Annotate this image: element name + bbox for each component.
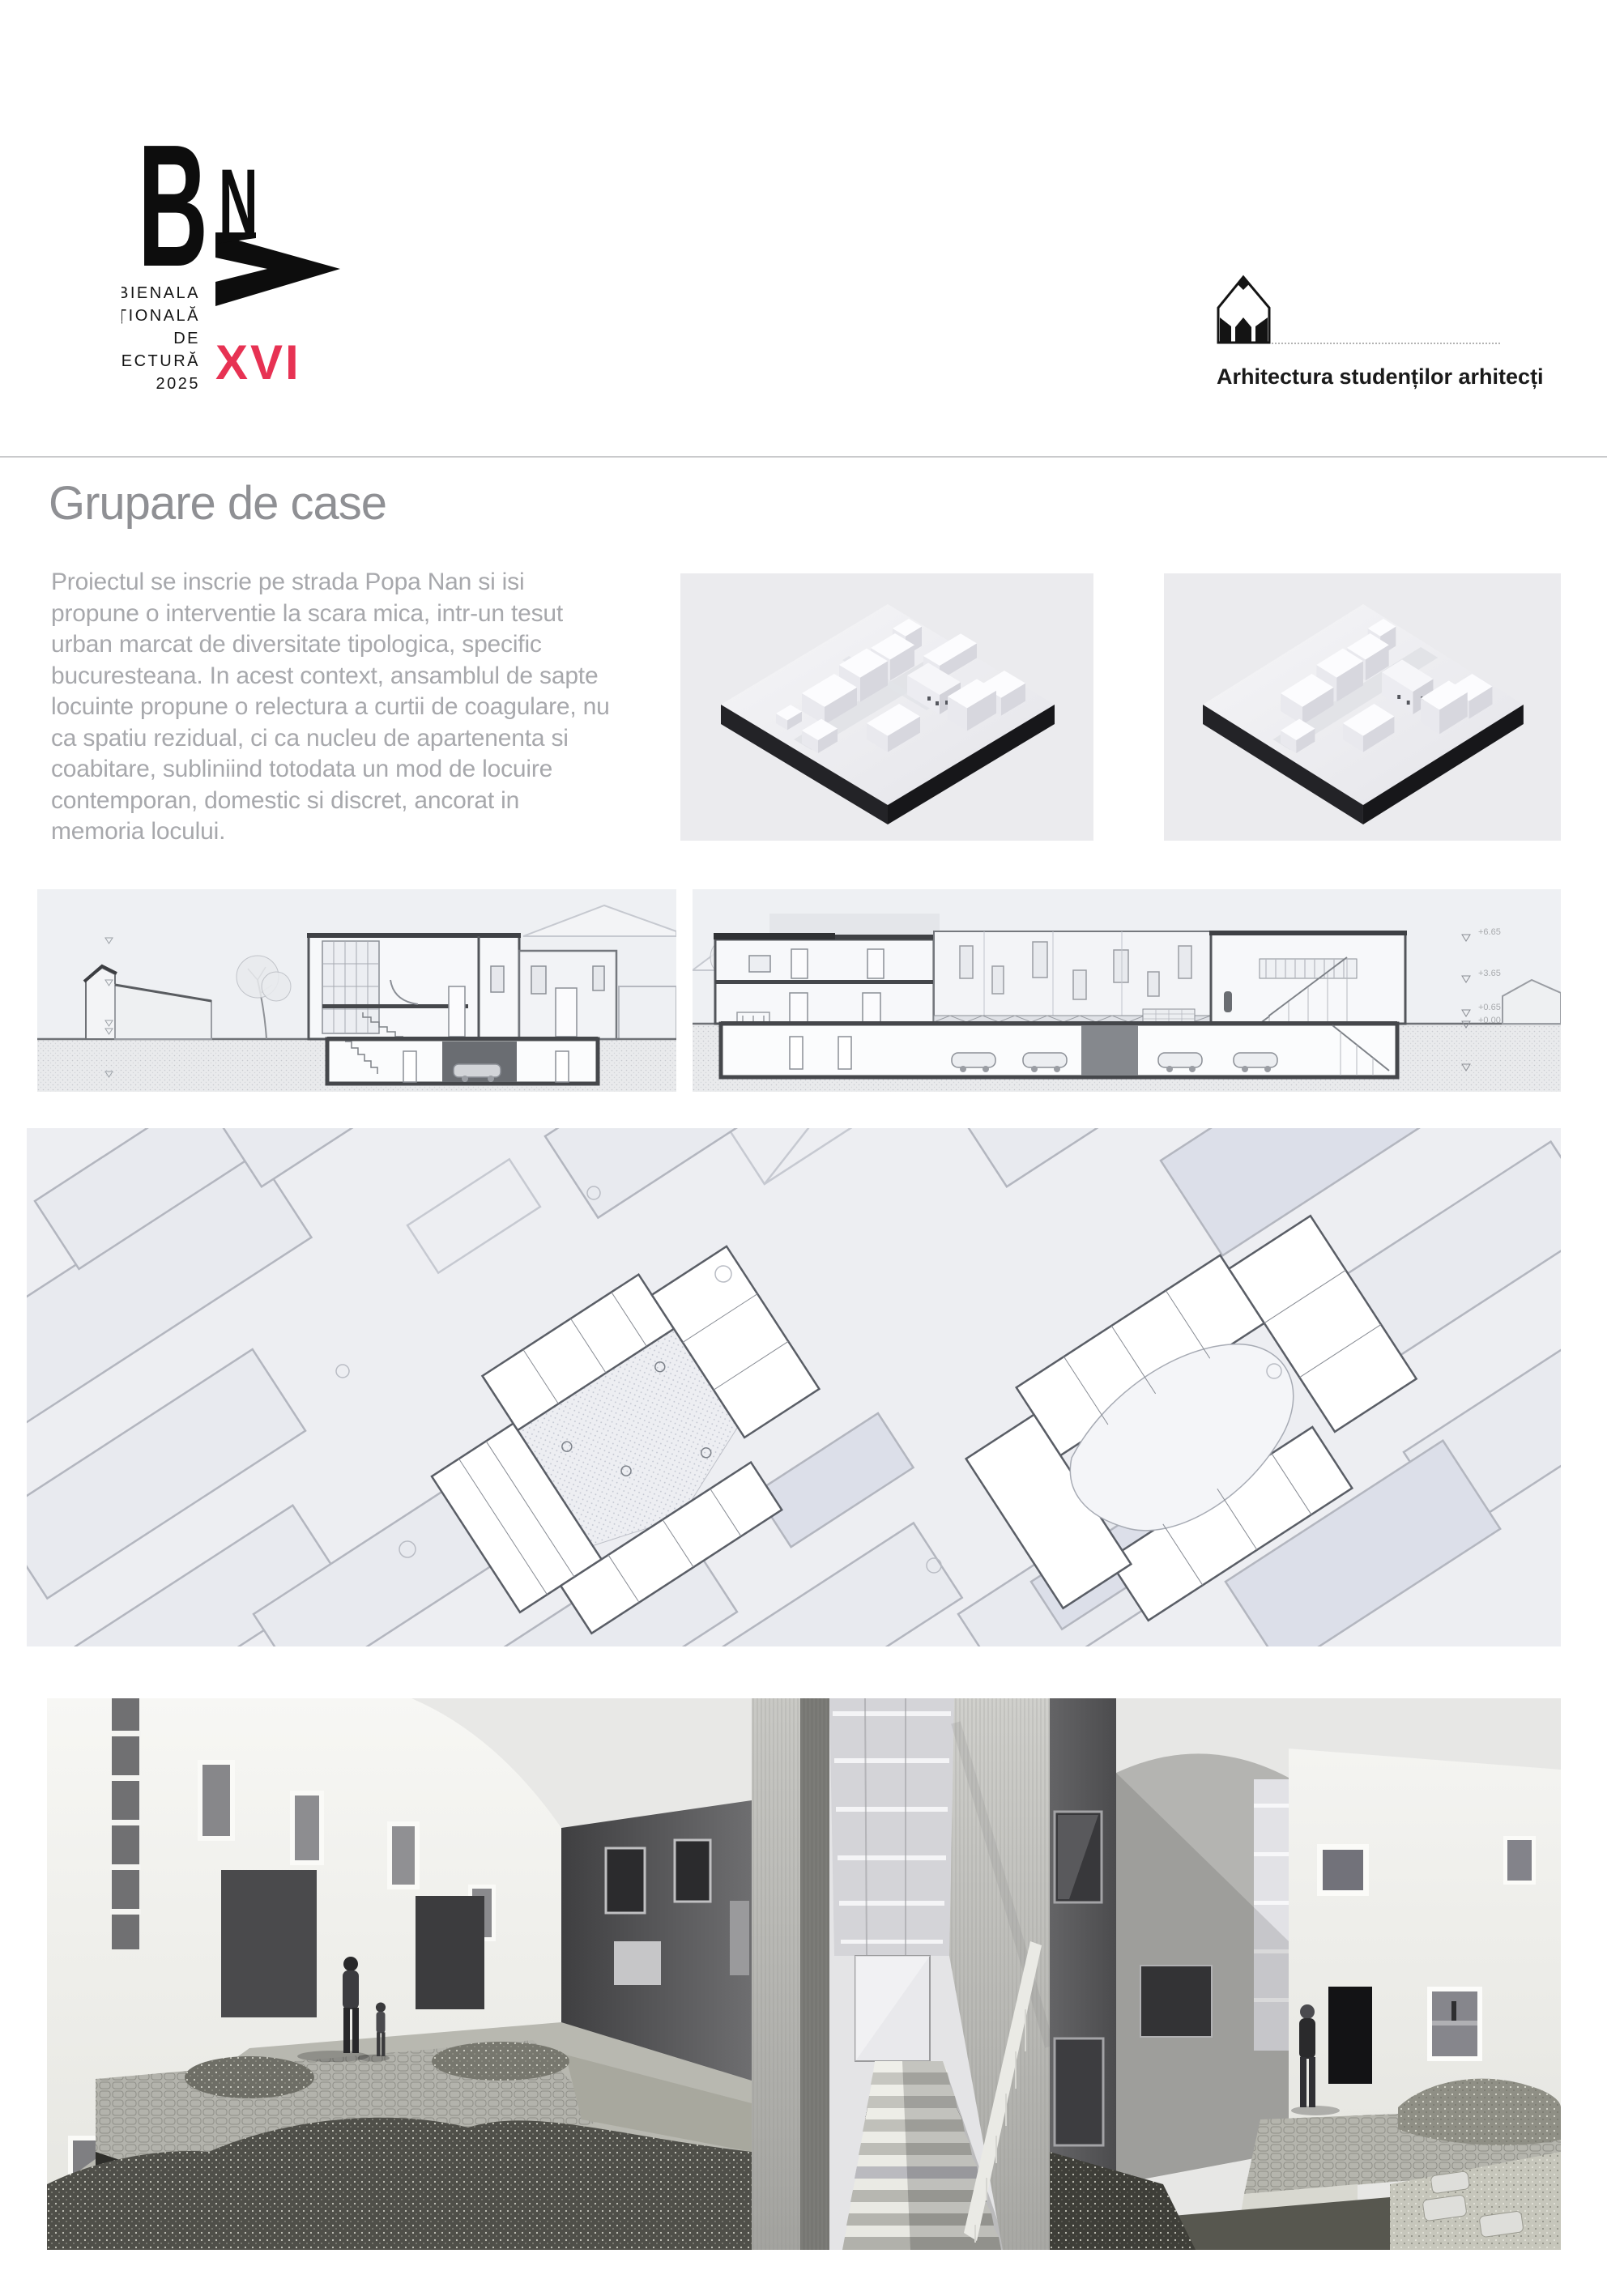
background-building [619, 986, 676, 1039]
cross-section-a [37, 889, 676, 1092]
poster-page: B N BIENALA NAȚIONALĂ DE ARHITECTURĂ 202… [0, 0, 1607, 2296]
sectioned-block-left [714, 933, 936, 1024]
program-logo: Arhitectura studenților arhitecți [1207, 267, 1547, 397]
stair-alley-render [752, 1698, 1050, 2250]
bna-year: 2025 [156, 375, 201, 393]
bna-letter-b: B [138, 130, 208, 303]
middle-elevation [934, 931, 1211, 1024]
basement [327, 1037, 598, 1084]
svg-text:ARHITECTURĂ: ARHITECTURĂ [121, 351, 200, 370]
basement [721, 1021, 1397, 1077]
site-plan [27, 1128, 1561, 1646]
sectioned-annex [519, 951, 616, 1039]
project-description: Proiectul se inscrie pe strada Popa Nan … [51, 567, 676, 848]
interior-window [1427, 1987, 1482, 2061]
bna-edition: XVI [215, 335, 301, 390]
svg-text:NAȚIONALĂ: NAȚIONALĂ [121, 306, 200, 325]
svg-text:B: B [138, 130, 208, 303]
dark-entrance [416, 1896, 484, 2009]
svg-text:+3.65: +3.65 [1478, 969, 1501, 978]
header-divider [0, 456, 1607, 458]
svg-text:+0.65: +0.65 [1478, 1003, 1501, 1012]
bna-letter-a-icon [215, 232, 340, 306]
courtyard-render-right [1050, 1698, 1561, 2250]
pencil-house-icon [1218, 277, 1269, 343]
svg-text:+6.65: +6.65 [1478, 927, 1501, 937]
left-wall [752, 1698, 829, 2250]
svg-text:+0.00: +0.00 [1478, 1016, 1501, 1025]
lit-window [614, 1941, 661, 1985]
sectioned-building [307, 933, 521, 1039]
axonometric-view-2 [1164, 573, 1561, 841]
svg-text:DE: DE [173, 330, 200, 347]
courtyard-render-left [47, 1698, 752, 2250]
dark-doorway [1328, 1987, 1372, 2084]
page-title: Grupare de case [49, 476, 778, 530]
cross-section-b: +6.65 +3.65 +0.65 +0.00 [693, 889, 1561, 1092]
dark-entrance [221, 1870, 317, 2017]
bna-logo: B N BIENALA NAȚIONALĂ DE ARHITECTURĂ 202… [121, 130, 364, 397]
axonometric-view-1 [680, 573, 1093, 841]
bna-title-lines: BIENALA NAȚIONALĂ DE ARHITECTURĂ 2025 [121, 284, 200, 393]
program-label: Arhitectura studenților arhitecți [1217, 364, 1544, 389]
svg-text:BIENALA: BIENALA [121, 284, 200, 302]
sectioned-block-right [1209, 931, 1407, 1024]
